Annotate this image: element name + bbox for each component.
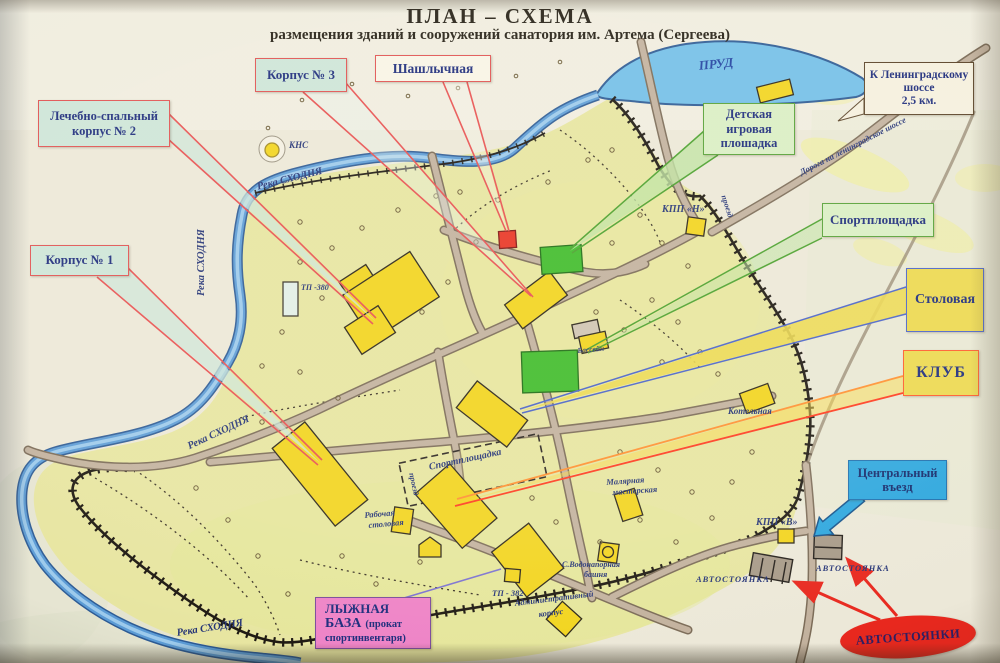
callout-lyzhnaya-line1: ЛЫЖНАЯ (325, 601, 389, 617)
callout-leningradskoe-shosse: К Ленинградскому шоссе 2,5 км. (864, 62, 974, 115)
label-avtostoyanka-right: АВТОСТОЯНКА (816, 563, 890, 573)
label-kpp-v: КПП «В» (756, 517, 798, 528)
callout-korpus-1-label: Корпус № 1 (46, 253, 114, 268)
playground-sport-green (521, 350, 578, 393)
callout-tsentralny-vezd: Центральный въезд (848, 460, 947, 500)
sanatorium-plan-poster: ПЛАН – СХЕМА размещения зданий и сооруже… (0, 0, 1000, 663)
callout-sportploschadka-label: Спортплощадка (830, 213, 926, 228)
label-tp380: ТП -380 (301, 283, 329, 292)
callout-shosse-line3: 2,5 км. (902, 95, 937, 108)
callout-korpus-2-line2: корпус № 2 (72, 124, 136, 138)
building-shashlychnaya (498, 230, 516, 248)
label-kotelnaya: Котельная (728, 406, 772, 416)
callout-lyzhnaya-baza: ЛЫЖНАЯ БАЗА (прокат спортинвентаря) (315, 597, 431, 649)
callout-shosse-line2: шоссе (904, 82, 935, 95)
callout-korpus-2: Лечебно-спальный корпус № 2 (38, 100, 170, 147)
poster-title: ПЛАН – СХЕМА (0, 4, 1000, 29)
label-kpp-n: КПП «Н» (662, 204, 705, 215)
callout-lyzhnaya-prokat: (прокат (365, 619, 402, 632)
callout-sportploschadka: Спортплощадка (822, 203, 934, 237)
building-tp380 (283, 282, 298, 316)
callout-vezd-line1: Центральный (858, 466, 938, 480)
callout-shashlychnaya-label: Шашлычная (393, 61, 474, 77)
callout-korpus-1: Корпус № 1 (30, 245, 129, 276)
callout-detskaya-ploshchadka: Детская игровая плошадка (703, 103, 795, 155)
playground-detskaya (540, 245, 583, 275)
callout-korpus-2-line1: Лечебно-спальный (50, 109, 158, 123)
callout-detskaya-line2: игровая (726, 122, 772, 136)
callout-avtostoyanki-label: АВТОСТОЯНКИ (855, 626, 960, 648)
building-tp382 (504, 568, 520, 582)
callout-korpus-3-label: Корпус № 3 (267, 68, 335, 83)
callout-klub: КЛУБ (903, 350, 979, 396)
parking-right (814, 535, 843, 560)
kns-symbol (259, 136, 285, 162)
label-bashnya-line2: башня (584, 570, 607, 579)
callout-vezd-line2: въезд (882, 480, 912, 494)
poster-subtitle: размещения зданий и сооружений санатория… (0, 27, 1000, 44)
building-kpp-v (778, 529, 794, 543)
callout-klub-label: КЛУБ (916, 364, 966, 382)
callout-shashlychnaya: Шашлычная (375, 55, 491, 82)
callout-detskaya-line3: плошадка (721, 136, 778, 150)
callout-shosse-line1: К Ленинградскому (870, 69, 969, 82)
callout-korpus-3: Корпус № 3 (255, 58, 347, 92)
label-kns: КНС (289, 140, 308, 150)
label-avtostoyanka-left: АВТОСТОЯНКА (696, 574, 770, 584)
callout-lyzhnaya-baza-word: БАЗА (325, 616, 361, 633)
label-reka-skhodnya-left: Река СХОДНЯ (196, 229, 207, 296)
callout-stolovaya: Столовая (906, 268, 984, 332)
building-kpp-n (686, 217, 706, 236)
callout-lyzhnaya-line2: БАЗА (прокат (325, 616, 402, 633)
label-bashnya-line1: С.Водонапорная (562, 560, 620, 569)
callout-stolovaya-label: Столовая (915, 292, 975, 308)
callout-lyzhnaya-line3: спортинвентаря) (325, 633, 406, 646)
callout-detskaya-line1: Детская (726, 107, 772, 121)
